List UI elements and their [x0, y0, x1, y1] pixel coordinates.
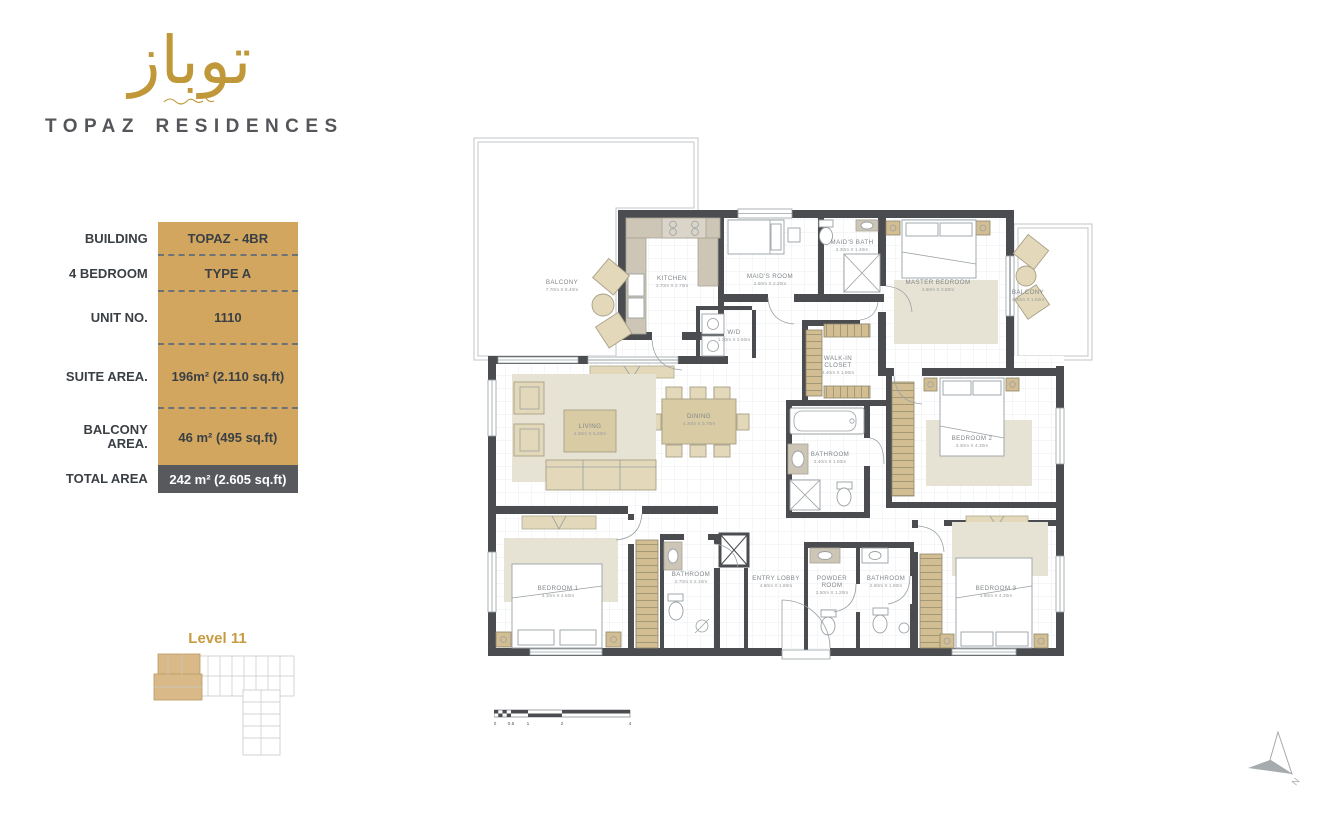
room-label-living: LIVING — [579, 423, 602, 430]
north-arrow: N — [1246, 728, 1318, 813]
info-row-total: TOTAL AREA 242 m² (2.605 sq.ft) — [45, 465, 298, 493]
level-label: Level 11 — [150, 630, 285, 647]
scale-tick-2: 2 — [561, 721, 564, 727]
stove-icon — [662, 218, 706, 238]
info-row-building: BUILDING TOPAZ - 4BR — [45, 222, 298, 256]
sink-icon — [818, 552, 832, 560]
svg-text:CLOSET: CLOSET — [824, 362, 851, 369]
row-label: UNIT NO. — [45, 292, 158, 345]
info-row-suite: SUITE AREA. 196m² (2.110 sq.ft) — [45, 345, 298, 409]
room-label-bedroom3: BEDROOM 3 — [976, 585, 1017, 592]
svg-text:3.40m X 1.90m: 3.40m X 1.90m — [814, 459, 847, 465]
toilet-icon — [821, 617, 835, 635]
row-label: BALCONY AREA. — [45, 409, 158, 465]
toilet-icon — [873, 615, 887, 633]
svg-text:3.80m X 4.30m: 3.80m X 4.30m — [980, 593, 1013, 599]
sink-icon — [792, 451, 804, 467]
svg-text:2.50m X 1.20m: 2.50m X 1.20m — [816, 590, 849, 596]
shaft — [720, 534, 748, 566]
svg-text:4.60m X 3.80m: 4.60m X 3.80m — [922, 287, 955, 293]
svg-text:2.50m X 2.20m: 2.50m X 2.20m — [754, 281, 787, 287]
logo-arabic: توباز — [45, 18, 335, 104]
row-label: SUITE AREA. — [45, 345, 158, 409]
room-label-maids-bath: MAID'S BATH — [831, 239, 874, 246]
brand-name: TOPAZ RESIDENCES — [45, 116, 335, 138]
scale-tick-05: 0.5 — [508, 721, 515, 727]
info-row-balcony: BALCONY AREA. 46 m² (495 sq.ft) — [45, 409, 298, 465]
room-label-wd: W/D — [727, 329, 740, 336]
room-label-maids-room: MAID'S ROOM — [747, 273, 793, 280]
floor-plan: BALCONY 7.70m X 8.40m KITCHEN 3.70m X 2.… — [466, 128, 1114, 685]
row-value: 46 m² (495 sq.ft) — [158, 409, 298, 465]
sink-icon — [861, 222, 873, 229]
scale-tick-1: 1 — [527, 721, 530, 727]
bathtub-icon — [790, 408, 864, 434]
room-label-bedroom1: BEDROOM 1 — [538, 585, 579, 592]
washer-icon — [702, 314, 724, 334]
info-row-type: 4 BEDROOM TYPE A — [45, 256, 298, 292]
minimap-highlight-unit — [158, 654, 200, 676]
entry-threshold — [782, 650, 830, 659]
info-row-unit: UNIT NO. 1110 — [45, 292, 298, 345]
svg-text:7.70m X 8.40m: 7.70m X 8.40m — [546, 287, 579, 293]
logo-flourish — [45, 94, 335, 108]
svg-text:3.70m X 2.70m: 3.70m X 2.70m — [656, 283, 689, 289]
floorplan-page: توباز TOPAZ RESIDENCES BUILDING TOPAZ - … — [0, 0, 1336, 836]
room-label-bath-master: BATHROOM — [811, 451, 850, 458]
svg-text:ROOM: ROOM — [822, 582, 843, 589]
row-value: TOPAZ - 4BR — [158, 222, 298, 256]
scale-tick-0: 0 — [494, 721, 497, 727]
svg-text:3.30m X 4.30m: 3.30m X 4.30m — [956, 443, 989, 449]
row-value: 242 m² (2.605 sq.ft) — [158, 465, 298, 493]
svg-text:2.30m X 1.40m: 2.30m X 1.40m — [836, 247, 869, 253]
svg-text:4.30m X 3.70m: 4.30m X 3.70m — [683, 421, 716, 427]
room-label-entry: ENTRY LOBBY — [752, 575, 800, 582]
toilet-icon — [837, 488, 851, 506]
room-label-powder: POWDER — [817, 575, 847, 582]
row-value: 1110 — [158, 292, 298, 345]
svg-text:2.50m X 1.80m: 2.50m X 1.80m — [870, 583, 903, 589]
row-value: 196m² (2.110 sq.ft) — [158, 345, 298, 409]
svg-text:4.50m X 1.80m: 4.50m X 1.80m — [760, 583, 793, 589]
scale-tick-4: 4 — [629, 721, 632, 727]
room-label-master: MASTER BEDROOM — [905, 279, 970, 286]
row-label: BUILDING — [45, 222, 158, 256]
room-label-bath1: BATHROOM — [672, 571, 711, 578]
row-label: TOTAL AREA — [45, 465, 158, 493]
svg-text:1.30m X 2.50m: 1.30m X 2.50m — [718, 337, 751, 343]
kitchen-sink-icon — [628, 274, 644, 296]
minimap-wing-right — [243, 690, 280, 755]
living-label-table — [564, 410, 616, 452]
svg-text:4.40m X 1.50m: 4.40m X 1.50m — [1012, 297, 1045, 303]
room-label-balcony-left: BALCONY — [546, 279, 578, 286]
room-label-bath3: BATHROOM — [867, 575, 906, 582]
scale-bar: 0 0.5 1 2 4 — [494, 704, 644, 737]
room-label-dining: DINING — [687, 413, 711, 420]
room-label-walkin: WALK-IN — [824, 355, 852, 362]
sink-icon — [668, 549, 678, 563]
svg-text:2.40m X 1.90m: 2.40m X 1.90m — [822, 370, 855, 376]
row-value: TYPE A — [158, 256, 298, 292]
svg-text:4.10m X 4.50m: 4.10m X 4.50m — [542, 593, 575, 599]
sink-icon — [869, 552, 881, 560]
room-label-bedroom2: BEDROOM 2 — [952, 435, 993, 442]
toilet-icon — [669, 602, 683, 620]
sofa-icon — [546, 460, 656, 490]
level-minimap — [148, 652, 308, 767]
room-label-balcony-right: BALCONY — [1012, 289, 1044, 296]
svg-text:2.70m X 2.10m: 2.70m X 2.10m — [675, 579, 708, 585]
svg-text:4.30m X 5.20m: 4.30m X 5.20m — [574, 431, 607, 437]
row-label: 4 BEDROOM — [45, 256, 158, 292]
north-label: N — [1290, 776, 1302, 787]
room-label-kitchen: KITCHEN — [657, 275, 687, 282]
brand-block: توباز TOPAZ RESIDENCES — [45, 18, 335, 138]
info-table: BUILDING TOPAZ - 4BR 4 BEDROOM TYPE A UN… — [45, 222, 298, 493]
